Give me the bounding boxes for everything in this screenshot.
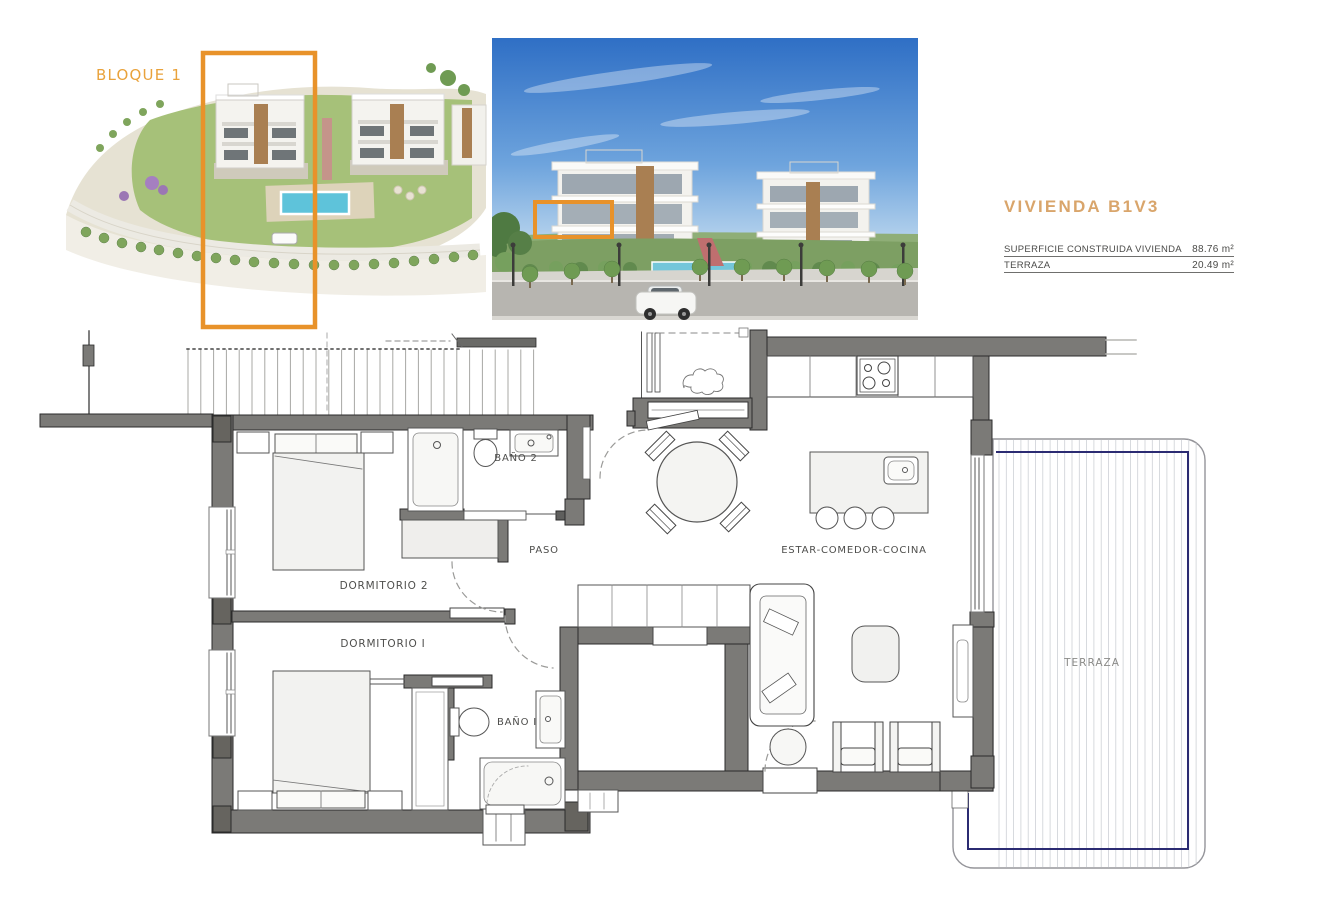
room-label-bano2: BAÑO 2 <box>494 451 537 464</box>
sofa <box>750 584 814 726</box>
paso-door-panel <box>583 427 590 479</box>
toilet <box>459 708 489 736</box>
shower-screen <box>486 805 524 814</box>
area-label: SUPERFICIE CONSTRUIDA VIVIENDA <box>1004 244 1182 255</box>
site-plan-render: BLOQUE 1 <box>66 53 486 327</box>
brochure-page: BLOQUE 1 <box>0 0 1320 895</box>
kitchen <box>767 356 973 529</box>
room-label-dormitorio1: DORMITORIO I <box>340 638 425 650</box>
dining-table <box>657 442 737 522</box>
wardrobe-dormitorio1 <box>412 688 448 810</box>
floor-plan: DORMITORIO 2 DORMITORIO I BAÑO 2 BAÑO I … <box>40 328 1205 868</box>
building-3-partial <box>452 105 486 165</box>
street <box>492 281 918 320</box>
bar-stools <box>816 507 894 529</box>
table-row: TERRAZA 20.49 m² <box>1004 257 1234 273</box>
unit-title: VIVIENDA B1V3 <box>1004 197 1234 217</box>
armchair <box>833 722 883 772</box>
building-photo <box>487 38 918 320</box>
area-table: SUPERFICIE CONSTRUIDA VIVIENDA 88.76 m² … <box>1004 241 1234 273</box>
room-label-terraza: TERRAZA <box>1063 657 1120 669</box>
area-label: TERRAZA <box>1004 260 1050 271</box>
unit-info: VIVIENDA B1V3 SUPERFICIE CONSTRUIDA VIVI… <box>1004 197 1234 273</box>
building-1 <box>214 84 308 179</box>
tv-unit <box>953 625 973 717</box>
window-dormitorio1 <box>209 650 235 736</box>
window-corridor <box>578 790 618 812</box>
living-furniture <box>578 584 973 772</box>
brochure-canvas: BLOQUE 1 <box>0 0 1320 895</box>
bathroom1-fixtures <box>450 691 565 814</box>
bathroom2-fixtures <box>408 428 558 511</box>
plant-decoration <box>683 369 723 395</box>
room-label-paso: PASO <box>529 545 559 556</box>
bedroom1-furniture <box>238 671 448 810</box>
red-path <box>322 118 332 180</box>
side-table <box>770 729 806 765</box>
walls <box>40 330 1106 833</box>
pergola <box>187 333 536 414</box>
room-label-bano1: BAÑO I <box>497 715 537 728</box>
area-value: 20.49 m² <box>1192 260 1234 271</box>
room-label-estar: ESTAR-COMEDOR-COCINA <box>781 545 927 556</box>
building-2 <box>350 94 448 175</box>
coffee-table <box>852 626 899 682</box>
stove <box>857 356 898 395</box>
toilet-tank <box>450 708 459 736</box>
table-row: SUPERFICIE CONSTRUIDA VIVIENDA 88.76 m² <box>1004 241 1234 257</box>
window-dormitorio2 <box>209 507 235 598</box>
exterior-post <box>83 331 94 414</box>
terrace-step <box>952 789 968 808</box>
area-value: 88.76 m² <box>1192 244 1234 255</box>
kitchen-island <box>810 452 928 513</box>
car <box>272 233 297 244</box>
room-label-dormitorio2: DORMITORIO 2 <box>340 580 429 592</box>
storage-cabinets <box>578 585 750 627</box>
dining-set <box>645 431 750 534</box>
toilet-tank <box>474 429 497 439</box>
entry-vestibule <box>642 328 749 418</box>
wardrobe-dormitorio2 <box>402 520 498 558</box>
wall-extension-lines <box>1106 340 1136 354</box>
block-label: BLOQUE 1 <box>96 66 182 84</box>
armchair <box>890 722 940 772</box>
window-living-terrace <box>971 455 984 612</box>
